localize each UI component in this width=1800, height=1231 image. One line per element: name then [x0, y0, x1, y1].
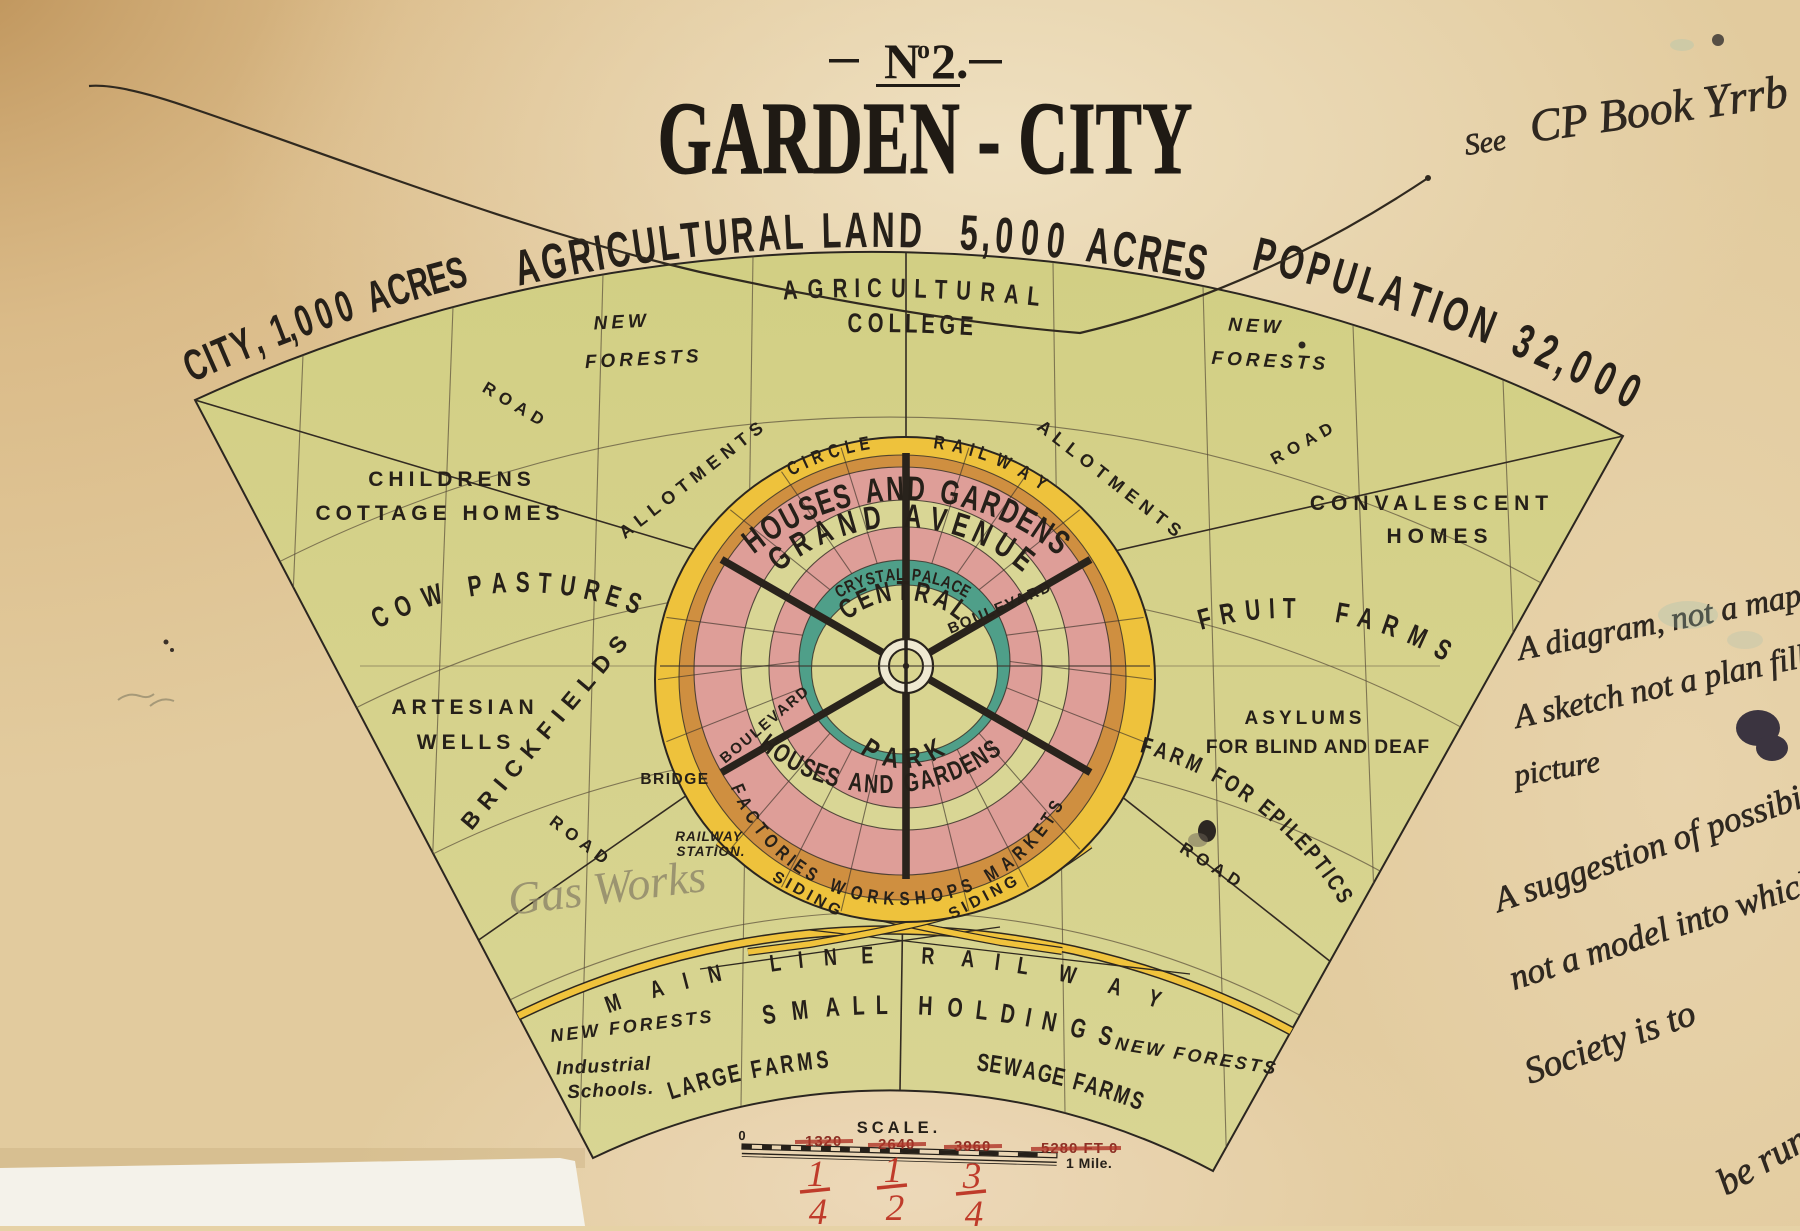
svg-text:C: C: [847, 308, 862, 339]
svg-text:I: I: [854, 273, 860, 304]
svg-text:SCALE.: SCALE.: [857, 1119, 942, 1137]
svg-text:L: L: [852, 992, 865, 1022]
svg-text:A: A: [490, 567, 507, 600]
svg-text:CHILDRENS: CHILDRENS: [368, 468, 536, 491]
svg-text:NEW: NEW: [593, 311, 650, 335]
svg-text:S: S: [899, 887, 910, 909]
svg-text:4: 4: [965, 1194, 984, 1226]
svg-text:L: L: [914, 274, 927, 305]
svg-text:FOR BLIND AND DEAF: FOR BLIND AND DEAF: [1206, 737, 1430, 758]
svg-text:G: G: [939, 310, 956, 341]
svg-text:O: O: [868, 308, 884, 339]
svg-text:NEW: NEW: [1228, 315, 1285, 339]
svg-text:WELLS: WELLS: [417, 731, 516, 754]
svg-text:O: O: [946, 993, 964, 1024]
svg-text:A: A: [824, 993, 840, 1024]
svg-text:A: A: [903, 498, 922, 536]
svg-text:U: U: [955, 275, 971, 306]
svg-text:R: R: [729, 206, 756, 264]
svg-text:D: D: [879, 769, 893, 799]
svg-text:T: T: [1283, 593, 1297, 625]
svg-text:H: H: [918, 992, 934, 1022]
svg-text:L: L: [876, 991, 888, 1021]
svg-text:M: M: [790, 996, 810, 1027]
svg-text:A: A: [756, 204, 783, 261]
svg-text:G: G: [807, 274, 824, 305]
svg-text:N: N: [885, 470, 904, 509]
svg-text:T: T: [934, 274, 948, 305]
svg-text:CONVALESCENT: CONVALESCENT: [1310, 492, 1554, 515]
svg-text:0: 0: [738, 1128, 746, 1143]
svg-text:N: N: [863, 768, 879, 798]
svg-text:R: R: [921, 943, 935, 970]
svg-text:A: A: [1003, 279, 1020, 311]
svg-text:1 Mile.: 1 Mile.: [1066, 1155, 1112, 1171]
svg-text:E: E: [959, 311, 974, 342]
svg-text:COTTAGE HOMES: COTTAGE HOMES: [316, 502, 565, 525]
svg-text:L: L: [782, 203, 804, 260]
svg-text:U: U: [891, 273, 906, 304]
svg-text:BRIDGE: BRIDGE: [640, 771, 709, 788]
svg-text:ASYLUMS: ASYLUMS: [1245, 708, 1366, 729]
svg-text:T: T: [897, 576, 910, 607]
svg-text:o: o: [917, 35, 930, 64]
svg-text:D: D: [898, 202, 922, 258]
svg-text:5: 5: [958, 204, 979, 261]
svg-text:E: E: [861, 943, 874, 969]
svg-text:See: See: [1462, 123, 1508, 161]
svg-text:R: R: [979, 277, 996, 309]
svg-text:4: 4: [809, 1192, 828, 1226]
svg-text:A: A: [844, 202, 868, 258]
svg-text:ARTESIAN: ARTESIAN: [391, 696, 538, 719]
svg-text:C: C: [867, 273, 882, 304]
svg-text:A: A: [960, 946, 975, 973]
svg-text:GARDEN - CITY: GARDEN - CITY: [658, 81, 1193, 196]
svg-text:N: N: [823, 944, 838, 971]
svg-text:N: N: [871, 202, 894, 258]
svg-text:RAILWAY: RAILWAY: [675, 829, 743, 844]
svg-text:2: 2: [886, 1188, 905, 1226]
svg-text:S: S: [516, 567, 530, 599]
svg-text:K: K: [883, 887, 896, 910]
svg-text:L: L: [888, 308, 901, 339]
svg-text:L: L: [821, 202, 842, 258]
svg-text:HOMES: HOMES: [1386, 525, 1493, 548]
